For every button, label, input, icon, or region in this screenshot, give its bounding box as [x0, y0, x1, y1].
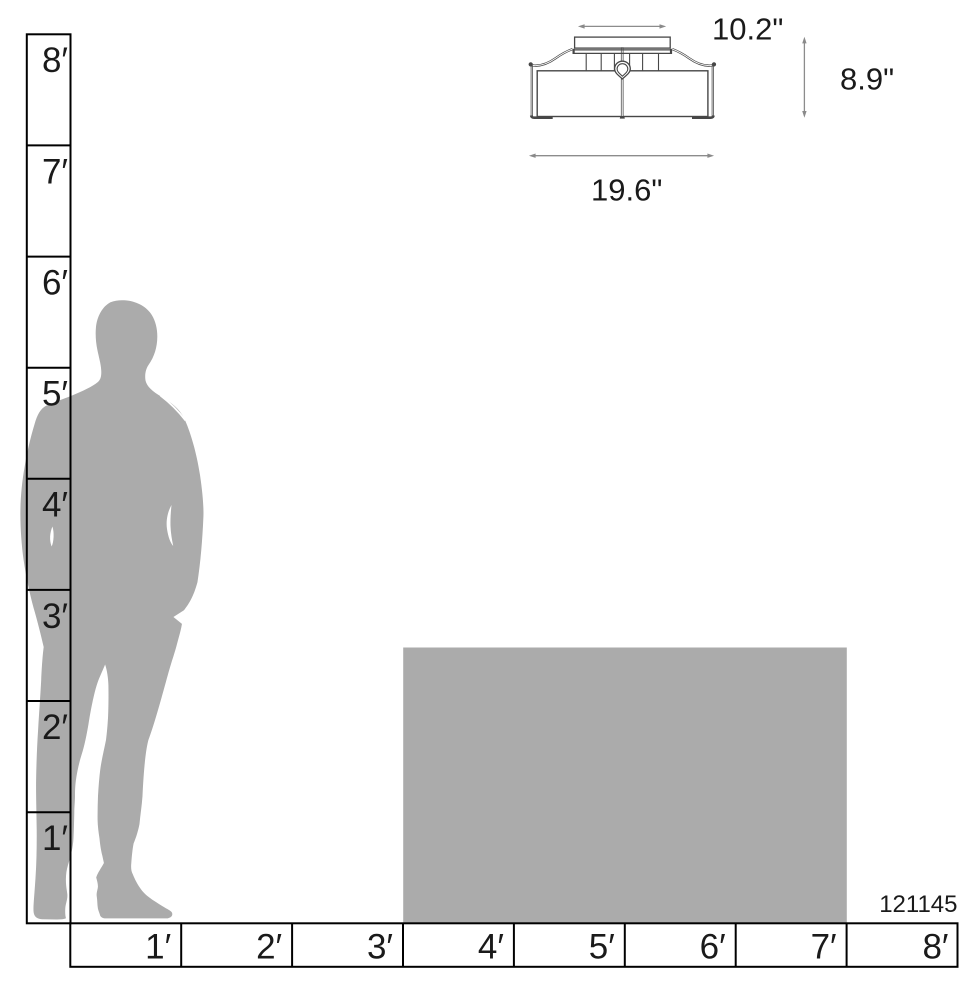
svg-text:6′: 6′ [42, 263, 68, 302]
svg-text:3′: 3′ [367, 928, 393, 967]
svg-text:4′: 4′ [478, 928, 504, 967]
svg-text:10.2": 10.2" [712, 12, 783, 47]
svg-text:1′: 1′ [42, 819, 68, 858]
svg-text:8.9": 8.9" [840, 62, 894, 97]
svg-text:1′: 1′ [145, 928, 171, 967]
svg-text:2′: 2′ [42, 708, 68, 747]
svg-text:7′: 7′ [42, 152, 68, 191]
svg-text:7′: 7′ [811, 928, 837, 967]
svg-text:6′: 6′ [700, 928, 726, 967]
svg-text:3′: 3′ [42, 597, 68, 636]
svg-text:8′: 8′ [42, 41, 68, 80]
svg-text:4′: 4′ [42, 486, 68, 525]
svg-text:121145: 121145 [879, 891, 957, 918]
svg-text:19.6": 19.6" [591, 173, 662, 208]
svg-text:5′: 5′ [42, 375, 68, 414]
svg-text:8′: 8′ [922, 928, 948, 967]
svg-text:5′: 5′ [589, 928, 615, 967]
svg-text:2′: 2′ [256, 928, 282, 967]
